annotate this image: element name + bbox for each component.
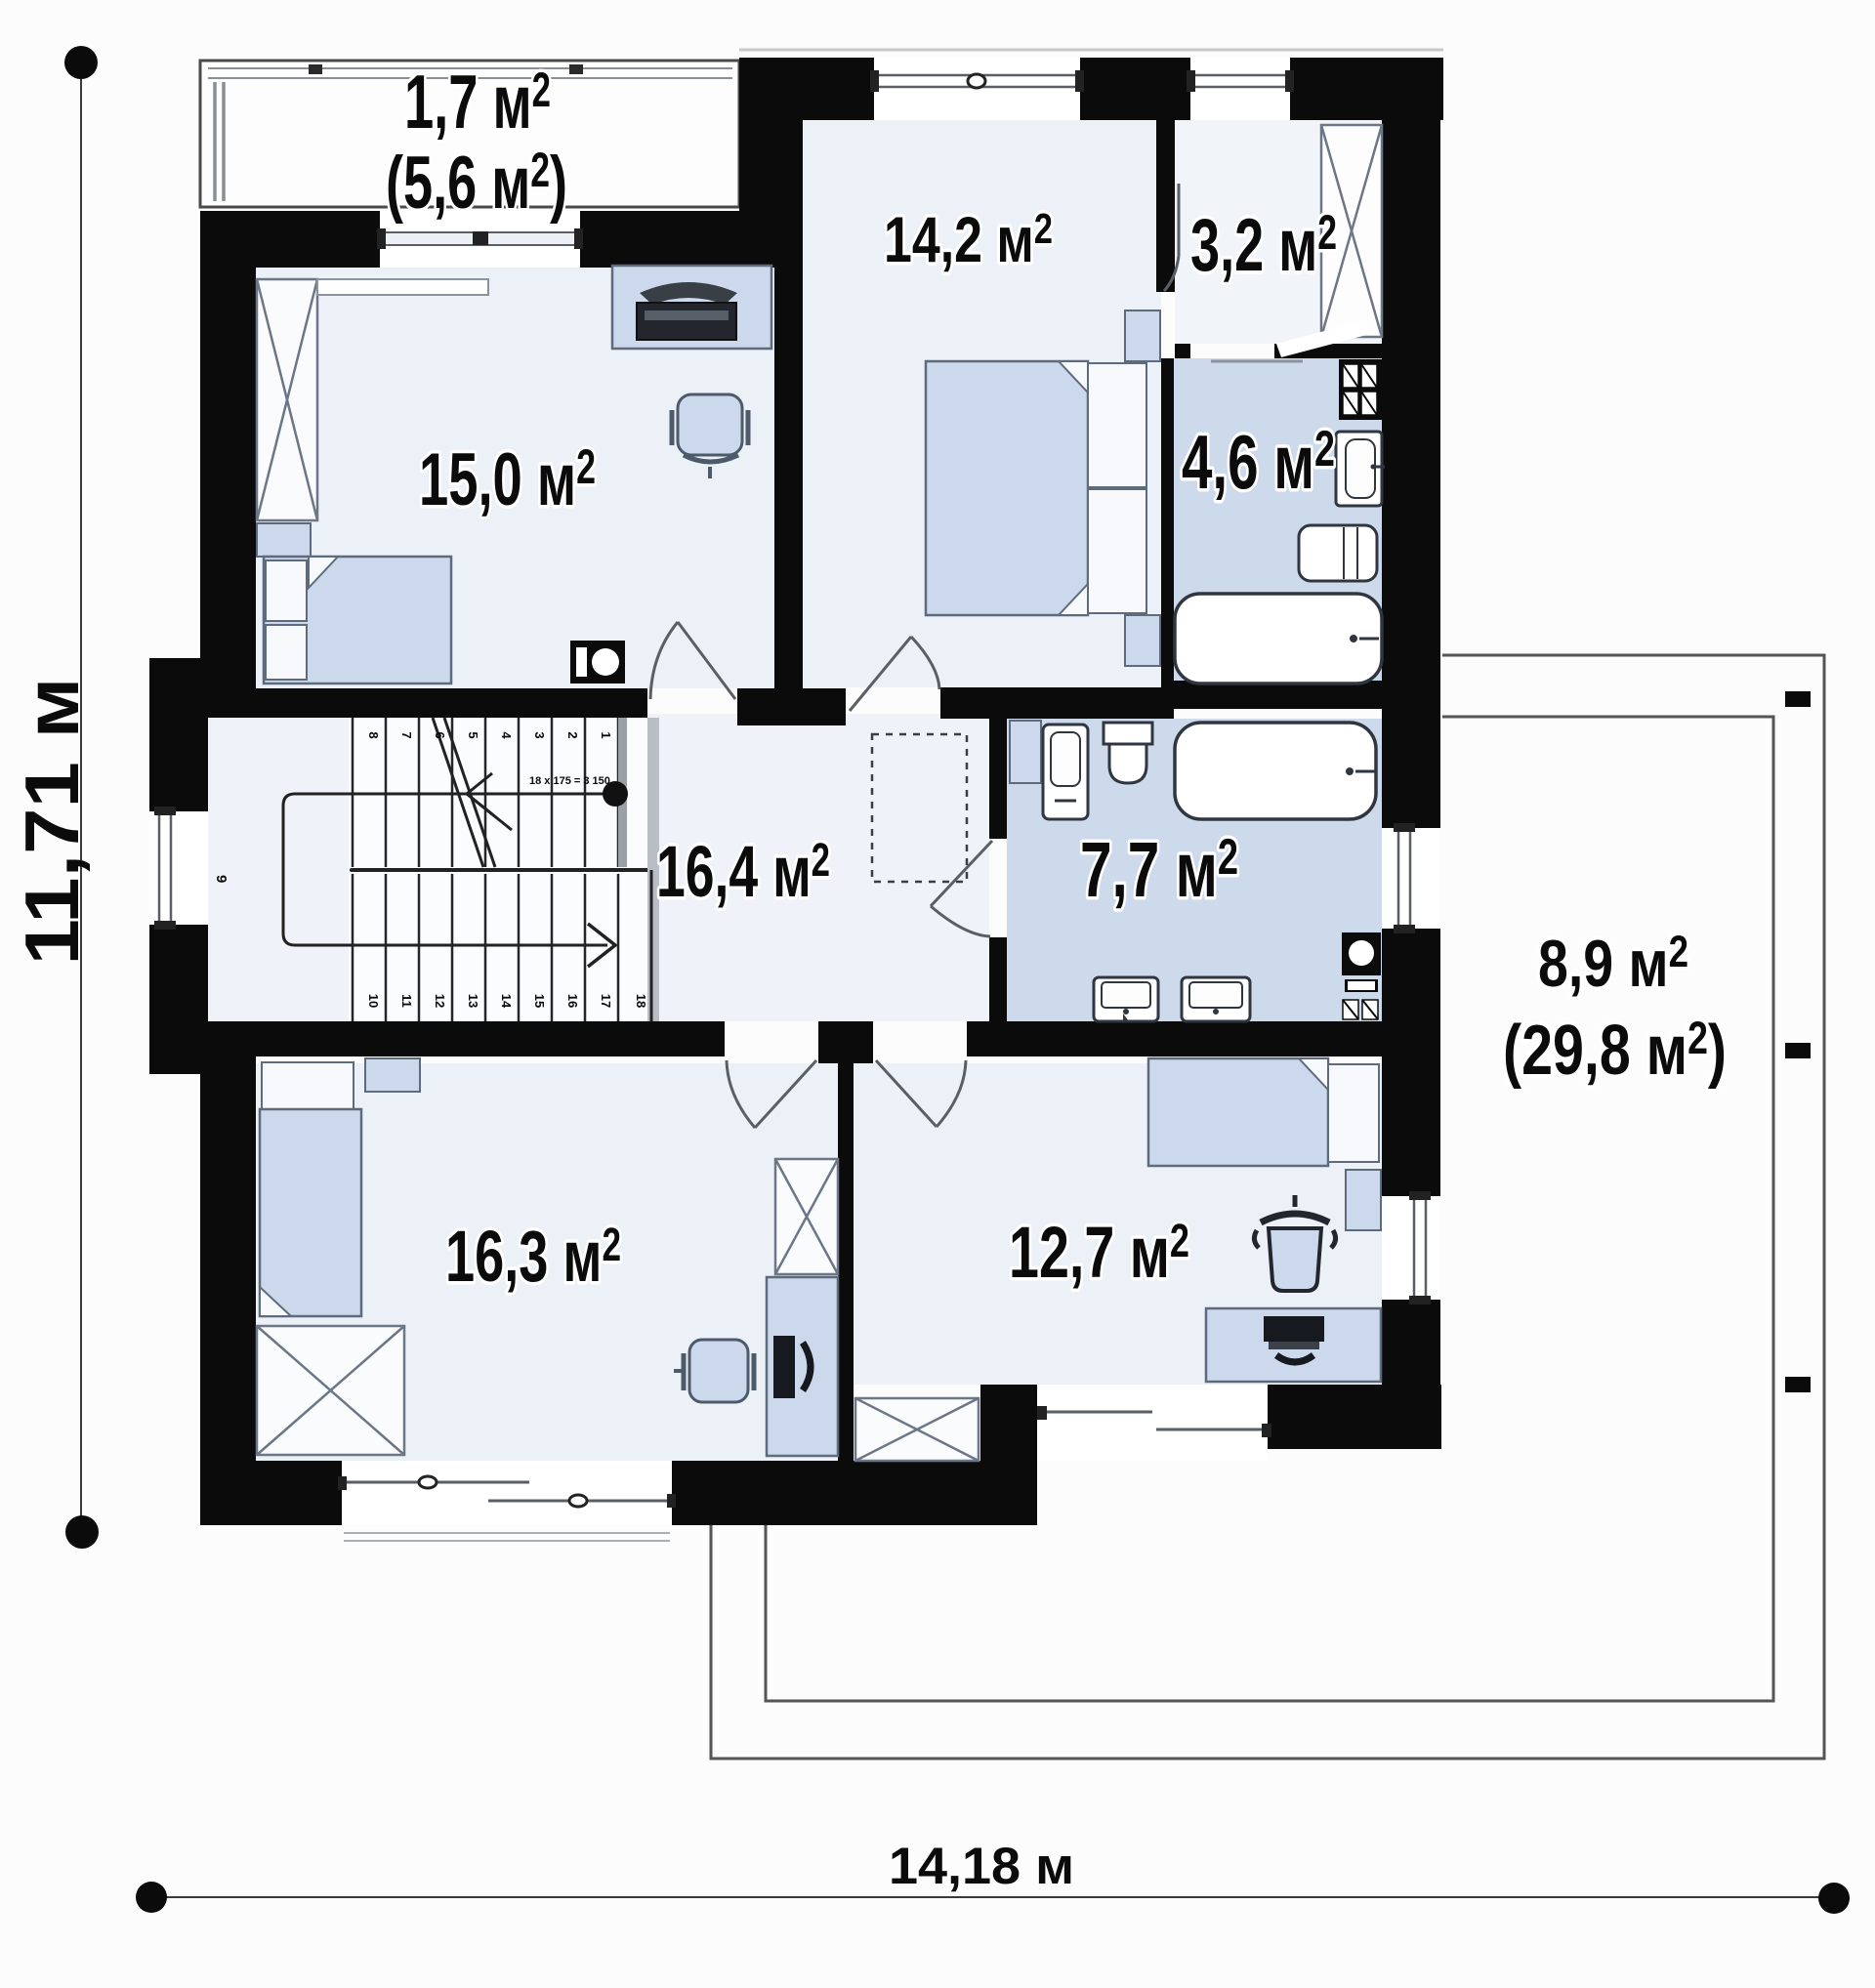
svg-text:8,9 м2: 8,9 м2 bbox=[1538, 927, 1688, 1001]
svg-text:4,6 м2: 4,6 м2 bbox=[1182, 419, 1335, 505]
svg-text:2: 2 bbox=[565, 731, 580, 738]
svg-text:18 x 175 = 3 150: 18 x 175 = 3 150 bbox=[529, 775, 610, 787]
svg-text:13: 13 bbox=[466, 994, 480, 1008]
svg-text:18: 18 bbox=[634, 994, 648, 1008]
svg-text:17: 17 bbox=[599, 994, 613, 1008]
svg-text:14,18 м: 14,18 м bbox=[889, 1838, 1074, 1895]
svg-text:16: 16 bbox=[565, 994, 580, 1008]
svg-text:4: 4 bbox=[499, 731, 514, 739]
svg-text:7,7 м2: 7,7 м2 bbox=[1080, 826, 1238, 913]
svg-text:15,0 м2: 15,0 м2 bbox=[419, 438, 596, 521]
svg-text:3,2 м2: 3,2 м2 bbox=[1190, 204, 1337, 287]
svg-text:8: 8 bbox=[366, 731, 381, 738]
svg-text:5: 5 bbox=[466, 731, 480, 738]
svg-text:1,7 м2: 1,7 м2 bbox=[404, 59, 551, 145]
svg-text:12,7 м2: 12,7 м2 bbox=[1009, 1212, 1189, 1293]
svg-text:6: 6 bbox=[433, 731, 447, 738]
svg-text:11,71 м: 11,71 м bbox=[9, 678, 95, 966]
svg-text:9: 9 bbox=[213, 875, 229, 883]
svg-text:7: 7 bbox=[399, 731, 414, 738]
svg-text:3: 3 bbox=[532, 731, 547, 738]
svg-text:11: 11 bbox=[399, 994, 414, 1008]
svg-text:12: 12 bbox=[433, 994, 447, 1008]
svg-text:16,3 м2: 16,3 м2 bbox=[445, 1216, 621, 1297]
svg-text:14: 14 bbox=[499, 994, 514, 1009]
svg-text:15: 15 bbox=[532, 994, 547, 1008]
svg-text:10: 10 bbox=[366, 994, 381, 1008]
svg-text:14,2 м2: 14,2 м2 bbox=[884, 203, 1053, 275]
svg-text:1: 1 bbox=[599, 731, 613, 738]
svg-text:16,4 м2: 16,4 м2 bbox=[656, 831, 830, 912]
